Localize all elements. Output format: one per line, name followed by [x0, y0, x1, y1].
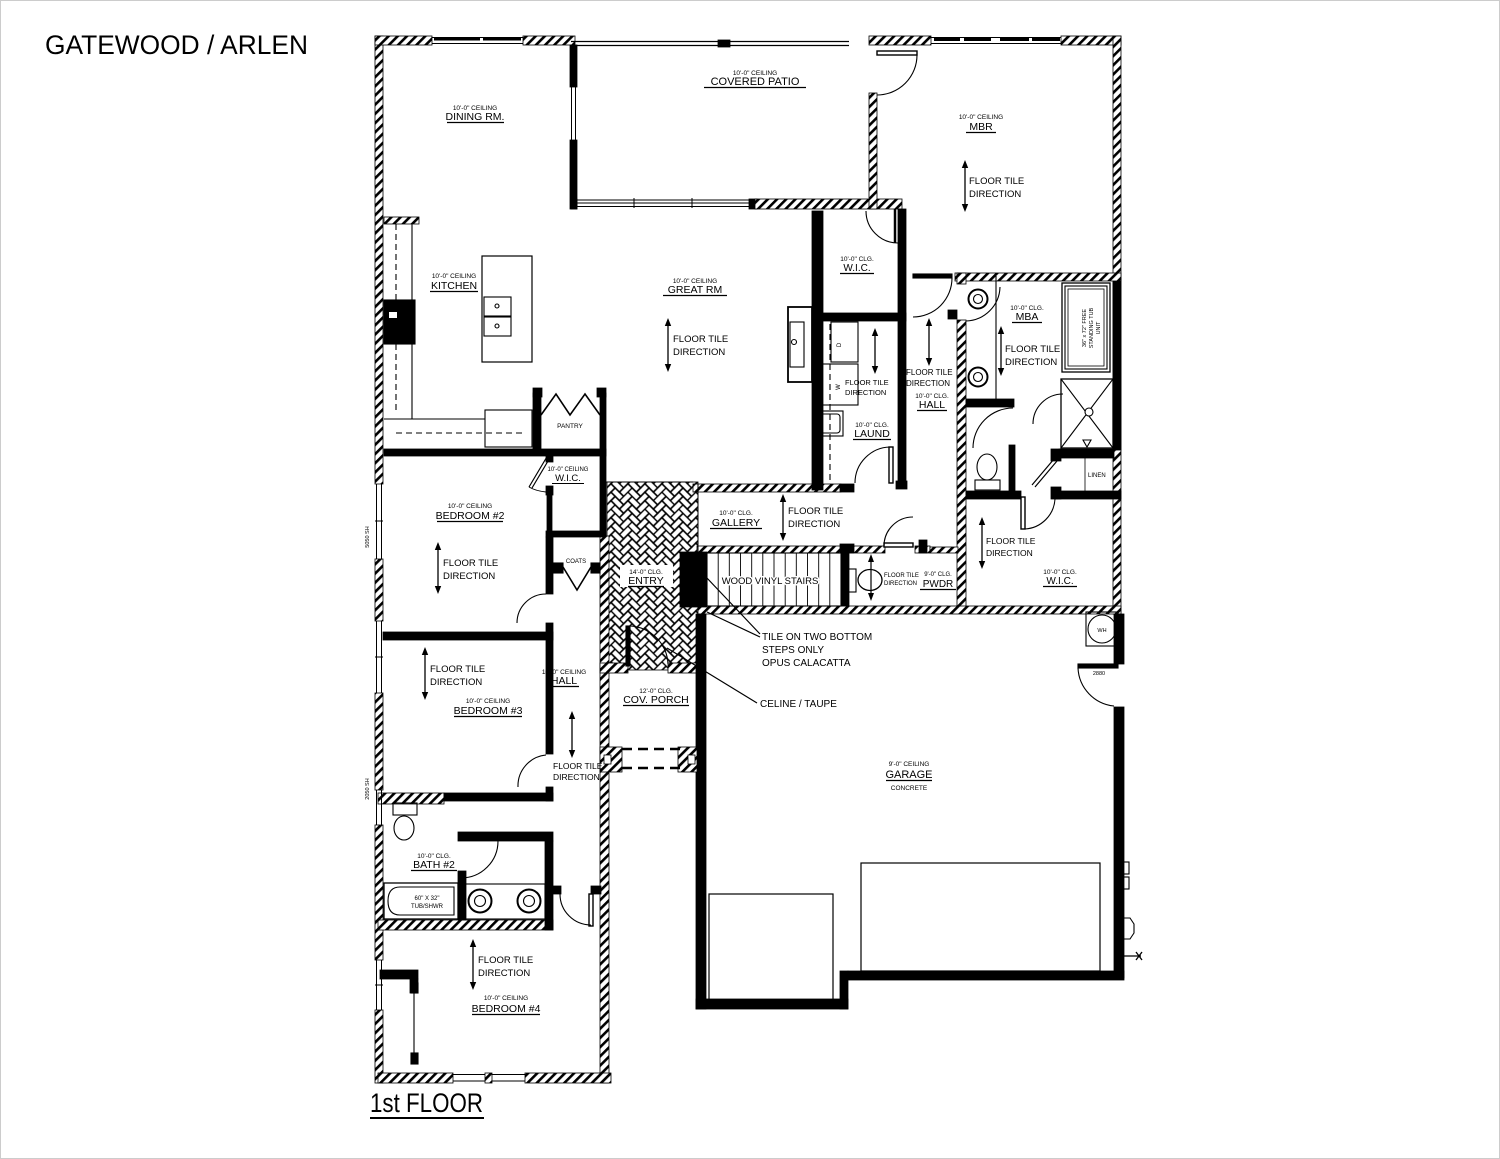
svg-text:GALLERY: GALLERY — [712, 517, 760, 529]
svg-text:36" x 72" FREE: 36" x 72" FREE — [1082, 309, 1088, 347]
svg-text:60" X 32": 60" X 32" — [415, 896, 440, 902]
svg-text:10'-0" CEILING: 10'-0" CEILING — [466, 698, 510, 705]
svg-text:DINING RM.: DINING RM. — [446, 111, 505, 123]
svg-text:10'-0" CEILING: 10'-0" CEILING — [959, 114, 1003, 121]
svg-text:STEPS ONLY: STEPS ONLY — [762, 645, 824, 656]
svg-text:2050 SH: 2050 SH — [365, 778, 371, 799]
svg-text:FLOOR TILE: FLOOR TILE — [1005, 344, 1060, 355]
svg-text:HALL: HALL — [551, 675, 577, 687]
svg-text:WOOD VINYL STAIRS: WOOD VINYL STAIRS — [722, 576, 819, 587]
svg-text:10'-0" CEILING: 10'-0" CEILING — [484, 995, 528, 1002]
svg-text:W.I.C.: W.I.C. — [843, 263, 870, 274]
svg-text:DIRECTION: DIRECTION — [845, 388, 886, 397]
svg-text:10'-0" CEILING: 10'-0" CEILING — [432, 273, 476, 280]
svg-text:D: D — [837, 342, 843, 347]
svg-text:GREAT RM: GREAT RM — [668, 284, 722, 296]
svg-text:W.I.C.: W.I.C. — [1046, 576, 1073, 587]
svg-text:DIRECTION: DIRECTION — [906, 379, 950, 388]
svg-text:9'-0" CEILING: 9'-0" CEILING — [889, 761, 930, 768]
svg-text:PANTRY: PANTRY — [557, 423, 583, 430]
svg-text:DIRECTION: DIRECTION — [1005, 357, 1057, 368]
svg-text:W: W — [836, 384, 842, 390]
svg-text:9'-0" CLG.: 9'-0" CLG. — [924, 572, 952, 578]
svg-text:DIRECTION: DIRECTION — [673, 347, 725, 358]
svg-text:COV. PORCH: COV. PORCH — [623, 694, 689, 706]
svg-text:LAUND: LAUND — [854, 428, 890, 440]
svg-text:COVERED PATIO: COVERED PATIO — [711, 76, 800, 88]
svg-text:FLOOR TILE: FLOOR TILE — [788, 506, 843, 517]
svg-text:KITCHEN: KITCHEN — [431, 280, 477, 292]
svg-text:1st FLOOR: 1st FLOOR — [370, 1088, 483, 1118]
svg-text:BEDROOM #2: BEDROOM #2 — [436, 510, 505, 522]
svg-text:BEDROOM #3: BEDROOM #3 — [454, 705, 523, 717]
svg-text:DIRECTION: DIRECTION — [478, 968, 530, 979]
svg-text:10'-0" CLG.: 10'-0" CLG. — [1043, 569, 1077, 576]
svg-text:TILE ON TWO BOTTOM: TILE ON TWO BOTTOM — [762, 632, 872, 643]
svg-text:DIRECTION: DIRECTION — [788, 519, 840, 530]
svg-text:MBA: MBA — [1016, 311, 1039, 323]
svg-text:ENTRY: ENTRY — [628, 575, 663, 587]
svg-text:WH: WH — [1097, 628, 1106, 634]
svg-text:MBR: MBR — [969, 121, 993, 133]
svg-text:PWDR: PWDR — [923, 579, 954, 590]
svg-text:BATH #2: BATH #2 — [413, 859, 455, 871]
svg-text:10'-0" CLG.: 10'-0" CLG. — [719, 510, 753, 517]
svg-text:OPUS CALACATTA: OPUS CALACATTA — [762, 658, 851, 669]
svg-text:2880: 2880 — [1093, 671, 1105, 677]
svg-text:TUB/SHWR: TUB/SHWR — [411, 904, 444, 910]
svg-text:GATEWOOD / ARLEN: GATEWOOD / ARLEN — [45, 30, 308, 60]
svg-text:FLOOR TILE: FLOOR TILE — [478, 955, 533, 966]
svg-text:COATS: COATS — [566, 559, 586, 565]
svg-text:CELINE / TAUPE: CELINE / TAUPE — [760, 699, 837, 710]
svg-text:10'-0" CLG.: 10'-0" CLG. — [840, 256, 874, 263]
svg-text:DIRECTION: DIRECTION — [553, 772, 600, 782]
svg-text:LINEN: LINEN — [1088, 473, 1106, 479]
svg-text:CONCRETE: CONCRETE — [891, 785, 928, 792]
svg-text:FLOOR TILE: FLOOR TILE — [443, 558, 498, 569]
svg-text:DIRECTION: DIRECTION — [969, 189, 1021, 200]
svg-text:FLOOR TILE: FLOOR TILE — [969, 176, 1024, 187]
svg-text:GARAGE: GARAGE — [885, 769, 932, 781]
svg-text:W.I.C.: W.I.C. — [555, 473, 581, 484]
svg-text:BEDROOM #4: BEDROOM #4 — [472, 1003, 541, 1015]
svg-text:DIRECTION: DIRECTION — [986, 548, 1033, 558]
svg-text:FLOOR TILE: FLOOR TILE — [430, 664, 485, 675]
svg-text:FLOOR TILE: FLOOR TILE — [986, 536, 1036, 546]
svg-text:10'-0" CEILING: 10'-0" CEILING — [448, 503, 492, 510]
svg-text:HALL: HALL — [919, 399, 945, 411]
svg-text:DIRECTION: DIRECTION — [430, 677, 482, 688]
svg-text:FLOOR TILE: FLOOR TILE — [884, 573, 919, 579]
svg-text:STANDING TUB: STANDING TUB — [1089, 307, 1095, 348]
svg-text:UNIT: UNIT — [1096, 321, 1102, 334]
svg-text:5050 SH: 5050 SH — [365, 526, 371, 547]
svg-text:FLOOR TILE: FLOOR TILE — [673, 334, 728, 345]
svg-text:DIRECTION: DIRECTION — [884, 581, 917, 587]
svg-text:DIRECTION: DIRECTION — [443, 571, 495, 582]
svg-text:FLOOR TILE: FLOOR TILE — [845, 378, 889, 387]
svg-text:FLOOR TILE: FLOOR TILE — [553, 761, 603, 771]
svg-text:FLOOR TILE: FLOOR TILE — [906, 368, 953, 377]
